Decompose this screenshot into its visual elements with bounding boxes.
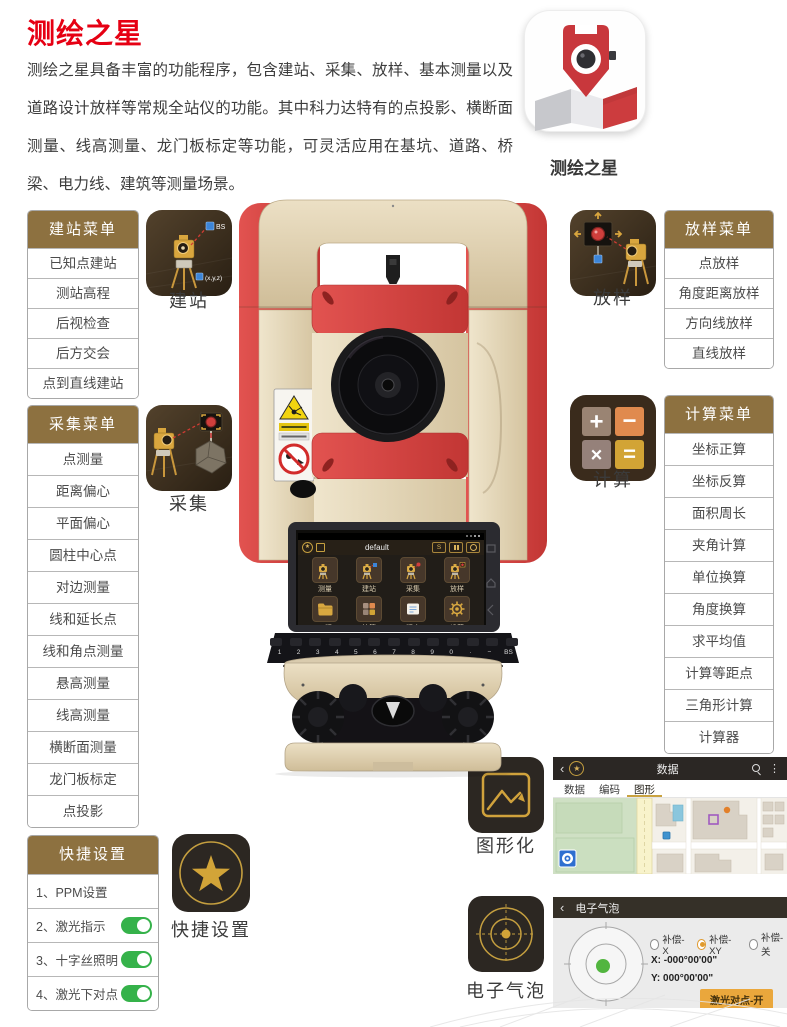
menu-item: 计算器 <box>665 721 773 753</box>
device-statusbar <box>298 533 484 540</box>
stakeout-menu: 放样菜单 点放样 角度距离放样 方向线放样 直线放样 <box>664 210 774 369</box>
menu-item: 点测量 <box>28 443 138 475</box>
star-icon: ★ <box>569 761 584 776</box>
quick-setting-label: 3、十字丝照明 <box>36 950 118 969</box>
program-app-icon <box>403 599 423 619</box>
overflow-menu-icon[interactable]: ⋮ <box>769 762 780 775</box>
collect-menu: 采集菜单 点测量 距离偏心 平面偏心 圆柱中心点 对边测量 线和延长点 线和角点… <box>27 405 139 828</box>
key-minus[interactable]: − <box>480 649 499 656</box>
screen-app-stakeout[interactable]: 放样 <box>435 557 479 594</box>
star-icon[interactable]: ★ <box>302 542 313 553</box>
menu-item: 求平均值 <box>665 625 773 657</box>
toggle-on-switch[interactable] <box>121 985 152 1002</box>
menu-item: 夹角计算 <box>665 529 773 561</box>
menu-item: 面积周长 <box>665 497 773 529</box>
station-setup-tile: BS (x,y,z) <box>146 210 232 296</box>
menu-item: 线和延长点 <box>28 603 138 635</box>
map-app-screenshot: ‹ ★ 数据 ⋮ 数据 编码 图形 <box>553 757 787 874</box>
quick-setting-row: 4、激光下对点 <box>28 976 158 1010</box>
screen-app-measure[interactable]: 测量 <box>303 557 347 594</box>
key-0[interactable]: 0 <box>442 649 461 656</box>
key-3[interactable]: 3 <box>308 649 327 656</box>
settings-gear-icon <box>447 599 467 619</box>
key-4[interactable]: 4 <box>327 649 346 656</box>
device-keyboard-row <box>270 638 518 646</box>
app-icon-card <box>524 10 646 132</box>
device-titlebar: ★ default S <box>298 540 484 555</box>
screen-app-program[interactable]: 程序 <box>391 596 435 625</box>
map-app-title: 数据 <box>584 761 751 777</box>
screen-app-station[interactable]: 建站 <box>347 557 391 594</box>
electronic-bubble-icon <box>468 896 544 972</box>
tilt-y-value: Y: 000°00'00" <box>651 973 713 984</box>
menu-item: 距离偏心 <box>28 475 138 507</box>
menu-item: 角度换算 <box>665 593 773 625</box>
collect-icon <box>146 405 232 491</box>
stakeout-app-icon <box>447 560 467 580</box>
device-screen: ★ default S 测量 建站 采集 放样 <box>298 533 484 625</box>
menu-item: 坐标正算 <box>665 433 773 465</box>
key-9[interactable]: 9 <box>423 649 442 656</box>
menu-item: 后视检查 <box>28 308 138 338</box>
page: 测绘之星 测绘之星具备丰富的功能程序，包含建站、采集、放样、基本测量以及道路设计… <box>0 0 787 1027</box>
radio-comp-x[interactable]: 补偿-X <box>650 932 686 957</box>
station-tile-label: 建站 <box>146 287 232 313</box>
calc-tile-label: 计算 <box>570 466 656 492</box>
screen-app-calc[interactable]: 计算 <box>347 596 391 625</box>
menu-item: 三角形计算 <box>665 689 773 721</box>
circle-mode-button[interactable] <box>466 542 480 553</box>
menu-item: 点到直线建站 <box>28 368 138 398</box>
back-icon[interactable]: ‹ <box>560 900 564 915</box>
screen-app-settings[interactable]: 设置 <box>435 596 479 625</box>
collect-tile <box>146 405 232 491</box>
measure-app-icon <box>315 560 335 580</box>
quick-settings-star-icon <box>172 834 250 912</box>
total-station-photo <box>233 193 553 778</box>
collect-app-icon <box>403 560 423 580</box>
station-menu-header: 建站菜单 <box>28 211 138 248</box>
project-folder-icon <box>315 599 335 619</box>
page-title: 测绘之星 <box>27 12 143 52</box>
svg-text:+: + <box>589 409 603 436</box>
search-icon[interactable] <box>751 763 762 774</box>
menu-item: 悬高测量 <box>28 667 138 699</box>
station-setup-icon: BS (x,y,z) <box>146 210 232 296</box>
svg-text:BS: BS <box>216 224 226 231</box>
menu-item: 横断面测量 <box>28 731 138 763</box>
menu-item: 点投影 <box>28 795 138 827</box>
menu-item: 对边测量 <box>28 571 138 603</box>
svg-text:(x,y,z): (x,y,z) <box>205 275 222 282</box>
calc-app-icon <box>359 599 379 619</box>
key-6[interactable]: 6 <box>365 649 384 656</box>
map-view[interactable] <box>553 798 787 874</box>
menu-item: 单位换算 <box>665 561 773 593</box>
key-7[interactable]: 7 <box>384 649 403 656</box>
device-app-grid: 测量 建站 采集 放样 工程 计算 <box>298 555 484 625</box>
key-2[interactable]: 2 <box>289 649 308 656</box>
device-keyboard-labels: 1 2 3 4 5 6 7 8 9 0 · − BS <box>270 649 518 656</box>
station-app-icon <box>359 560 379 580</box>
menu-item: 直线放样 <box>665 338 773 368</box>
radio-comp-xy[interactable]: 补偿-XY <box>697 932 738 957</box>
menu-item: 线和角点测量 <box>28 635 138 667</box>
back-icon[interactable]: ‹ <box>560 761 564 776</box>
grid-view-button[interactable] <box>449 542 463 553</box>
s-mode-button[interactable]: S <box>432 542 446 553</box>
quick-setting-row: 2、激光指示 <box>28 908 158 942</box>
menu-item: 线高测量 <box>28 699 138 731</box>
map-app-tabs: 数据 编码 图形 <box>553 780 787 798</box>
station-setup-menu: 建站菜单 已知点建站 测站高程 后视检查 后方交会 点到直线建站 <box>27 210 139 399</box>
key-1[interactable]: 1 <box>270 649 289 656</box>
menu-item: 龙门板标定 <box>28 763 138 795</box>
menu-item: 已知点建站 <box>28 248 138 278</box>
quick-settings-menu: 快捷设置 1、PPM设置 2、激光指示 3、十字丝照明 4、激光下对点 <box>27 835 159 1011</box>
menu-item: 角度距离放样 <box>665 278 773 308</box>
quick-settings-tile <box>172 834 250 912</box>
svg-text:−: − <box>622 408 636 435</box>
tab-code[interactable]: 编码 <box>592 780 627 797</box>
app-icon-label: 测绘之星 <box>524 154 644 179</box>
collect-menu-header: 采集菜单 <box>28 406 138 443</box>
screen-app-project[interactable]: 工程 <box>303 596 347 625</box>
quick-tile-label: 快捷设置 <box>152 916 270 942</box>
menu-item: 计算等距点 <box>665 657 773 689</box>
radio-comp-off[interactable]: 补偿-关 <box>749 930 787 958</box>
map-app-header: ‹ ★ 数据 ⋮ <box>553 757 787 780</box>
project-icon[interactable] <box>316 543 325 552</box>
calc-menu: 计算菜单 坐标正算 坐标反算 面积周长 夹角计算 单位换算 角度换算 求平均值 … <box>664 395 774 754</box>
menu-item: 后方交会 <box>28 338 138 368</box>
compensation-radio-group: 补偿-X 补偿-XY 补偿-关 <box>650 930 787 958</box>
quick-menu-header: 快捷设置 <box>28 836 158 874</box>
quick-setting-label: 4、激光下对点 <box>36 984 118 1003</box>
svg-text:=: = <box>623 442 636 467</box>
quick-setting-label: 1、PPM设置 <box>36 882 108 901</box>
tab-graphic[interactable]: 图形 <box>627 780 662 797</box>
menu-item: 圆柱中心点 <box>28 539 138 571</box>
menu-item: 测站高程 <box>28 278 138 308</box>
graphic-tile-label: 图形化 <box>460 832 552 858</box>
surveying-star-app-icon <box>525 11 645 131</box>
tilt-x-value: X: -000°00'00" <box>651 955 717 966</box>
tab-data[interactable]: 数据 <box>557 780 592 797</box>
key-8[interactable]: 8 <box>404 649 423 656</box>
wireframe-decoration <box>430 988 787 1027</box>
key-5[interactable]: 5 <box>346 649 365 656</box>
menu-item: 平面偏心 <box>28 507 138 539</box>
key-dot[interactable]: · <box>461 649 480 656</box>
bubble-app-header: ‹ 电子气泡 <box>553 897 787 918</box>
bubble-app-title: 电子气泡 <box>575 900 619 916</box>
key-bs[interactable]: BS <box>499 649 518 656</box>
page-description: 测绘之星具备丰富的功能程序，包含建站、采集、放样、基本测量以及道路设计放样等常规… <box>27 52 513 204</box>
collect-tile-label: 采集 <box>146 490 232 516</box>
screen-app-collect[interactable]: 采集 <box>391 557 435 594</box>
stakeout-tile-label: 放样 <box>570 284 656 310</box>
quick-setting-label: 2、激光指示 <box>36 916 105 935</box>
project-name: default <box>325 543 429 552</box>
toggle-on-switch[interactable] <box>121 951 152 968</box>
svg-text:×: × <box>591 445 603 467</box>
quick-setting-row: 3、十字丝照明 <box>28 942 158 976</box>
calc-menu-header: 计算菜单 <box>665 396 773 433</box>
menu-item: 坐标反算 <box>665 465 773 497</box>
toggle-on-switch[interactable] <box>121 917 152 934</box>
stakeout-menu-header: 放样菜单 <box>665 211 773 248</box>
menu-item: 方向线放样 <box>665 308 773 338</box>
menu-item: 点放样 <box>665 248 773 278</box>
bubble-tile <box>468 896 544 972</box>
quick-setting-row: 1、PPM设置 <box>28 874 158 908</box>
